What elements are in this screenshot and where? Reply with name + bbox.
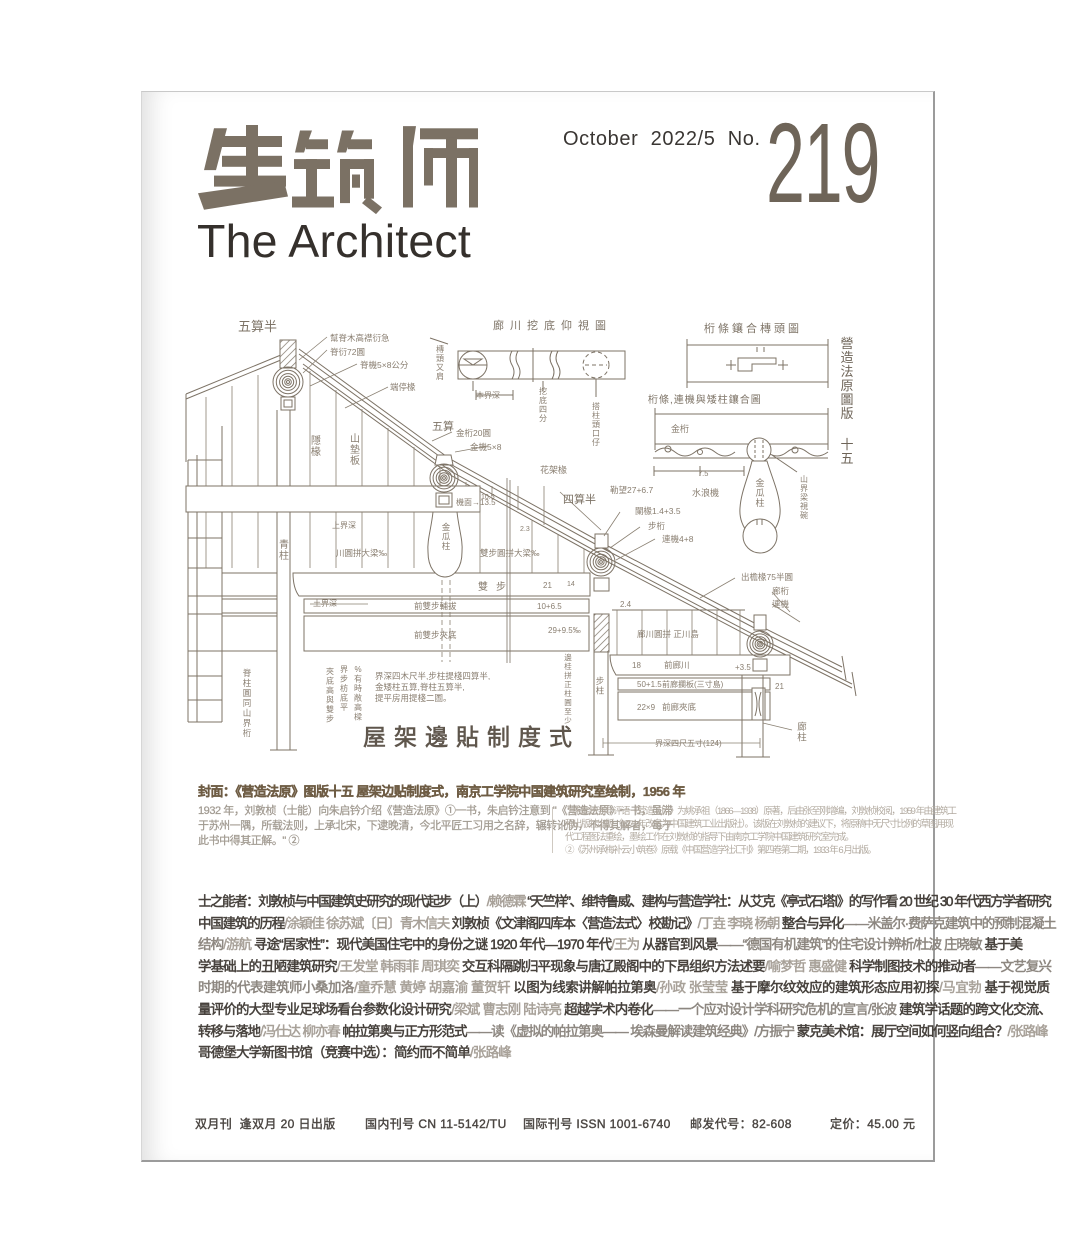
svg-text:四算半: 四算半 [563, 492, 596, 506]
svg-text:肩: 肩 [436, 371, 444, 381]
svg-text:高: 高 [354, 702, 362, 712]
svg-text:青: 青 [279, 538, 289, 551]
svg-text:步: 步 [596, 676, 605, 686]
svg-text:柱: 柱 [279, 549, 289, 562]
svg-text:花架椽: 花架椽 [540, 464, 567, 475]
svg-text:7.5: 7.5 [698, 469, 708, 478]
svg-text:%: % [354, 665, 361, 674]
svg-text:界: 界 [243, 718, 252, 728]
svg-text:廊川圓拼 正川島: 廊川圓拼 正川島 [637, 629, 699, 639]
svg-text:端停椽: 端停椽 [390, 382, 416, 392]
svg-text:口: 口 [592, 429, 600, 438]
svg-text:21: 21 [543, 581, 552, 590]
svg-text:桁條鑲合槫頭圖: 桁條鑲合槫頭圖 [704, 321, 802, 335]
svg-text:桁條,連機與矮柱鑲合圖: 桁條,連機與矮柱鑲合圖 [648, 393, 762, 406]
svg-text:雙: 雙 [326, 704, 334, 714]
svg-text:少: 少 [564, 716, 572, 725]
svg-text:+3.5: +3.5 [735, 663, 751, 672]
svg-text:五算: 五算 [432, 419, 454, 433]
svg-text:四: 四 [539, 405, 547, 414]
svg-text:底: 底 [539, 395, 547, 405]
svg-text:闌椽1.4+3.5: 闌椽1.4+3.5 [635, 506, 681, 516]
svg-text:界: 界 [800, 484, 808, 493]
svg-text:挖: 挖 [539, 386, 547, 396]
svg-text:時: 時 [354, 684, 362, 693]
svg-text:脊: 脊 [243, 668, 252, 678]
svg-text:椽: 椽 [311, 445, 321, 458]
svg-text:底: 底 [340, 693, 348, 703]
svg-text:14: 14 [567, 581, 575, 588]
svg-text:分: 分 [539, 414, 547, 423]
svg-text:川圓拼大梁‰: 川圓拼大梁‰ [336, 548, 388, 558]
svg-text:50+1.5: 50+1.5 [637, 680, 662, 689]
svg-text:底: 底 [326, 676, 334, 686]
svg-text:五: 五 [840, 451, 853, 466]
svg-text:又: 又 [436, 363, 444, 372]
svg-text:山: 山 [350, 433, 360, 445]
svg-text:前廊攔板(三寸島): 前廊攔板(三寸島) [662, 679, 724, 689]
svg-text:造: 造 [840, 350, 853, 365]
svg-text:界: 界 [340, 665, 348, 674]
svg-text:金桁: 金桁 [671, 423, 689, 434]
svg-text:高: 高 [326, 685, 334, 695]
svg-text:平: 平 [340, 703, 348, 712]
svg-text:法: 法 [840, 364, 853, 379]
svg-text:幫脊木高襟衍急: 幫脊木高襟衍急 [330, 333, 390, 343]
svg-text:前廊川: 前廊川 [664, 660, 690, 670]
svg-text:前廊夾底: 前廊夾底 [662, 702, 697, 712]
svg-text:柱: 柱 [755, 497, 764, 508]
svg-text:柱: 柱 [243, 678, 252, 688]
svg-text:柱: 柱 [797, 732, 807, 744]
svg-text:樑: 樑 [354, 712, 362, 722]
svg-text:界深四木尺半,步柱提棧四算半,: 界深四木尺半,步柱提棧四算半, [375, 671, 490, 681]
svg-text:步桁: 步桁 [648, 521, 666, 531]
svg-text:步: 步 [340, 675, 348, 684]
svg-text:原: 原 [840, 378, 853, 393]
svg-text:同: 同 [243, 698, 252, 708]
svg-text:拼: 拼 [564, 670, 572, 680]
svg-text:梁: 梁 [800, 493, 808, 502]
svg-text:碗: 碗 [800, 510, 808, 520]
svg-text:板: 板 [350, 454, 360, 467]
svg-text:正: 正 [564, 680, 572, 689]
svg-text:桂: 桂 [564, 661, 572, 671]
svg-text:仔: 仔 [592, 437, 600, 447]
svg-text:瓜: 瓜 [442, 532, 451, 542]
svg-text:隱: 隱 [311, 434, 321, 447]
svg-text:頭: 頭 [592, 420, 600, 429]
svg-text:18: 18 [632, 661, 641, 670]
svg-text:出檐椽75半圓: 出檐椽75半圓 [741, 572, 793, 582]
svg-text:廊川挖底仰視圖: 廊川挖底仰視圖 [493, 318, 612, 332]
svg-text:山: 山 [243, 708, 252, 718]
svg-text:柱: 柱 [596, 686, 605, 696]
svg-text:21: 21 [775, 682, 784, 691]
svg-text:雙步圓拼大梁‰: 雙步圓拼大梁‰ [480, 548, 540, 558]
svg-text:柱: 柱 [592, 410, 600, 420]
svg-text:圓: 圓 [243, 688, 252, 698]
svg-text:柱: 柱 [442, 541, 451, 551]
svg-text:搭: 搭 [592, 401, 600, 411]
svg-text:柱: 柱 [564, 688, 572, 698]
svg-text:界深四尺五寸(124): 界深四尺五寸(124) [655, 738, 722, 748]
svg-text:脊衍72圓: 脊衍72圓 [330, 347, 365, 357]
svg-text:夾: 夾 [326, 667, 334, 676]
svg-text:上界深: 上界深 [332, 521, 356, 530]
svg-text:瓜: 瓜 [755, 488, 764, 498]
svg-text:前雙步輔拔: 前雙步輔拔 [414, 601, 457, 611]
svg-text:視: 視 [800, 502, 808, 511]
svg-text:金矮柱五算,脊柱五算半,: 金矮柱五算,脊柱五算半, [375, 682, 465, 692]
svg-text:枋: 枋 [340, 683, 348, 693]
svg-text:2.4: 2.4 [620, 600, 632, 609]
svg-text:2.3: 2.3 [520, 526, 530, 533]
svg-text:版: 版 [840, 406, 853, 421]
svg-text:10.5: 10.5 [481, 494, 495, 501]
svg-text:金機5×8: 金機5×8 [470, 442, 502, 452]
svg-text:土界深: 土界深 [313, 598, 337, 608]
svg-text:廊: 廊 [797, 721, 807, 733]
svg-text:圓: 圓 [564, 698, 572, 707]
svg-text:墊: 墊 [350, 443, 360, 456]
svg-text:金桁20圓: 金桁20圓 [456, 428, 491, 438]
svg-text:邊: 邊 [564, 652, 572, 662]
svg-text:敞: 敞 [354, 693, 362, 703]
svg-text:至: 至 [564, 707, 572, 716]
svg-text:29+9.5‰: 29+9.5‰ [548, 626, 581, 635]
svg-text:水浪機: 水浪機 [692, 487, 719, 498]
svg-text:廊桁: 廊桁 [772, 586, 790, 596]
svg-text:連機: 連機 [772, 599, 790, 609]
svg-text:山: 山 [800, 474, 808, 484]
svg-text:步: 步 [326, 715, 334, 724]
svg-text:前雙步夾底: 前雙步夾底 [414, 630, 457, 640]
svg-text:金: 金 [755, 477, 764, 488]
svg-text:提平房用提棧二圖。: 提平房用提棧二圖。 [375, 693, 452, 703]
svg-text:十: 十 [840, 437, 853, 452]
svg-text:連機4+8: 連機4+8 [662, 534, 694, 544]
svg-text:桁: 桁 [243, 728, 252, 738]
svg-text:頭: 頭 [436, 354, 444, 363]
svg-text:10+6.5: 10+6.5 [537, 602, 562, 611]
svg-text:營: 營 [840, 336, 853, 351]
svg-text:與: 與 [326, 695, 334, 705]
svg-text:圖: 圖 [840, 392, 853, 407]
svg-text:22×9: 22×9 [637, 703, 656, 712]
svg-text:有: 有 [354, 674, 362, 684]
svg-text:槫: 槫 [436, 344, 444, 354]
svg-text:脊機5×8公分: 脊機5×8公分 [360, 360, 409, 370]
svg-text:勒望27+6.7: 勒望27+6.7 [610, 485, 654, 495]
svg-text:屋架邊貼制度式: 屋架邊貼制度式 [363, 724, 580, 750]
svg-text:五算半: 五算半 [238, 319, 277, 334]
svg-text:金: 金 [442, 522, 451, 532]
svg-text:本界深: 本界深 [476, 390, 500, 400]
svg-text:雙步: 雙步 [478, 580, 514, 593]
